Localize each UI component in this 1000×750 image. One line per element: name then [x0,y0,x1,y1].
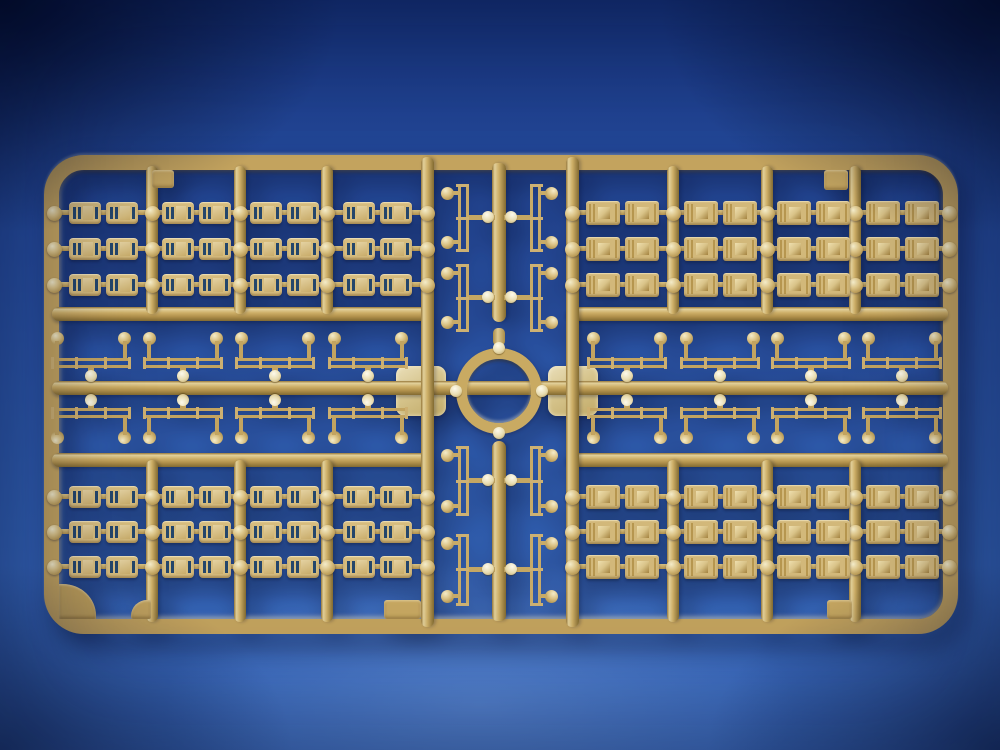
davit-tick [862,407,865,419]
davit-tick [143,407,146,419]
davit-tick [915,357,918,369]
knob-gate [320,560,335,575]
ladder-part [504,182,558,254]
knob-gate [666,490,681,505]
davit-gate-lug [896,370,908,382]
ring-gate-nub [493,342,505,354]
knob-gate [320,278,335,293]
davit-tick [75,407,78,419]
hatch-part-panel [684,201,718,225]
knob-gate [942,206,957,221]
hatch-part-panel [816,520,850,544]
ladder-rung [456,568,469,571]
davit-tick [939,407,942,419]
davit-rail [680,415,760,418]
ladder-rung [530,217,543,220]
davit-tick [862,357,865,369]
hatch-part-slatted [250,486,282,508]
davit-tick [680,407,683,419]
ladder-rung [530,534,543,537]
davit-rail [328,358,408,361]
runner-vertical [234,460,246,622]
hatch-part-panel [777,485,811,509]
knob-gate [565,525,580,540]
hatch-part-slatted [380,238,412,260]
hatch-part-panel [905,520,939,544]
ladder-rung [456,534,469,537]
hatch-part-slatted [199,556,231,578]
hatch-part-panel [866,237,900,261]
davit-post [307,418,311,435]
hatch-part-panel [625,555,659,579]
hatch-part-panel [625,520,659,544]
ladder-gate-lug [482,291,494,303]
knob-gate [420,242,435,257]
davit-tick [587,357,590,369]
davit-rail [235,358,315,361]
davit-tick [795,357,798,369]
davit-tick [220,407,223,419]
corner-tab [827,600,852,619]
knob-gate [942,242,957,257]
ladder-rung [456,329,469,332]
hatch-part-panel [777,520,811,544]
davit-post [239,341,243,358]
hatch-part-slatted [287,238,319,260]
knob-gate [47,560,62,575]
davit-gate-lug [896,394,908,406]
knob-gate [233,278,248,293]
ladder-rung [456,249,469,252]
knob-gate [47,278,62,293]
davit-tick [51,357,54,369]
davit-gate-lug [621,370,633,382]
ladder-stub [452,320,458,324]
davit-tick [196,407,199,419]
davit-tick [328,357,331,369]
sprue-assembly [0,0,1000,750]
davit-post [934,341,938,358]
davit-tick [288,407,291,419]
davit-post [775,341,779,358]
knob-gate [233,490,248,505]
hatch-part-slatted [343,274,375,296]
hatch-part-slatted [250,202,282,224]
davit-gate-lug [85,370,97,382]
runner-horizontal [566,307,948,321]
hatch-part-slatted [380,202,412,224]
hatch-part-slatted [162,274,194,296]
hatch-part-panel [625,273,659,297]
hatch-part-slatted [199,238,231,260]
ladder-stub [452,504,458,508]
davit-part [860,331,944,381]
davit-rail [143,358,223,361]
davit-tick [352,357,355,369]
runner-vertical [321,460,333,622]
davit-gate-lug [621,394,633,406]
runner-vertical [146,460,158,622]
davit-tick [381,407,384,419]
davit-post [400,341,404,358]
davit-tick [757,407,760,419]
davit-tick [328,407,331,419]
davit-post [400,418,404,435]
davit-tick [235,357,238,369]
hatch-part-panel [816,273,850,297]
knob-gate [565,490,580,505]
hatch-part-panel [905,237,939,261]
knob-gate [47,242,62,257]
davit-tick [733,407,736,419]
hatch-part-panel [625,201,659,225]
davit-tick [757,357,760,369]
ladder-stub [452,453,458,457]
davit-tick [848,407,851,419]
knob-gate [320,490,335,505]
hatch-part-slatted [343,521,375,543]
davit-tick [848,357,851,369]
knob-gate [760,490,775,505]
hatch-part-slatted [106,274,138,296]
hatch-part-panel [866,520,900,544]
davit-part [49,395,133,445]
davit-gate-lug [269,394,281,406]
ladder-stub [541,271,547,275]
davit-tick [288,357,291,369]
hatch-part-slatted [106,238,138,260]
ladder-rung [456,513,469,516]
davit-tick [664,357,667,369]
hatch-part-slatted [343,556,375,578]
ladder-part [504,444,558,518]
davit-tick [51,407,54,419]
knob-gate [233,206,248,221]
davit-part [49,331,133,381]
davit-post [215,341,219,358]
hatch-part-panel [625,237,659,261]
davit-tick [640,407,643,419]
knob-gate [666,525,681,540]
hatch-part-slatted [380,521,412,543]
ladder-stub [452,594,458,598]
davit-tick [128,407,131,419]
ladder-rung [530,513,543,516]
knob-gate [565,206,580,221]
ladder-stub [541,594,547,598]
davit-tick [104,357,107,369]
ladder-rung [456,480,469,483]
hatch-part-slatted [343,486,375,508]
knob-gate [942,490,957,505]
hatch-part-slatted [250,274,282,296]
hatch-part-slatted [162,521,194,543]
knob-gate [320,525,335,540]
knob-gate [233,525,248,540]
davit-tick [771,407,774,419]
davit-gate-lug [805,370,817,382]
davit-post [55,341,59,358]
ladder-stub [541,191,547,195]
davit-post [307,341,311,358]
davit-gate-lug [714,370,726,382]
hatch-part-panel [586,520,620,544]
hatch-part-slatted [250,238,282,260]
hatch-part-slatted [287,202,319,224]
ladder-part [441,262,495,334]
photo-of-sprue [0,0,1000,750]
davit-part [860,395,944,445]
hatch-part-panel [684,520,718,544]
davit-tick [312,407,315,419]
ladder-rung [530,446,543,449]
knob-gate [320,242,335,257]
hatch-part-panel [684,555,718,579]
davit-post [591,418,595,435]
davit-gate-lug [714,394,726,406]
davit-gate-lug [362,394,374,406]
hatch-part-slatted [106,202,138,224]
knob-gate [145,206,160,221]
davit-tick [886,407,889,419]
davit-post [332,418,336,435]
davit-tick [640,357,643,369]
ladder-stub [541,541,547,545]
davit-tick [167,357,170,369]
davit-part [585,331,669,381]
knob-gate [420,490,435,505]
davit-tick [886,357,889,369]
davit-post [752,341,756,358]
ladder-gate-lug [482,563,494,575]
davit-rail [680,358,760,361]
hatch-part-panel [866,201,900,225]
ladder-gate-lug [505,291,517,303]
davit-gate-lug [85,394,97,406]
runner-vertical [421,157,434,627]
ring-gate-nub [493,427,505,439]
hatch-part-panel [816,485,850,509]
davit-post [215,418,219,435]
runner-horizontal [566,453,948,467]
ladder-rung [530,249,543,252]
knob-gate [760,278,775,293]
hatch-part-panel [816,237,850,261]
davit-tick [405,407,408,419]
ladder-stub [541,320,547,324]
davit-tick [128,357,131,369]
davit-post [752,418,756,435]
ladder-stub [452,240,458,244]
ladder-rung [530,329,543,332]
davit-rail [328,415,408,418]
davit-post [775,418,779,435]
davit-tick [824,357,827,369]
hatch-part-panel [866,485,900,509]
ladder-rung [530,568,543,571]
knob-gate [47,525,62,540]
davit-gate-lug [269,370,281,382]
hatch-part-slatted [162,202,194,224]
davit-part [585,395,669,445]
hatch-part-slatted [69,274,101,296]
runner-vertical [761,460,773,622]
ladder-part [441,532,495,608]
hatch-part-panel [777,273,811,297]
davit-rail [51,358,131,361]
knob-gate [760,242,775,257]
knob-gate [942,278,957,293]
knob-gate [233,560,248,575]
hatch-part-slatted [106,521,138,543]
knob-gate [942,560,957,575]
davit-tick [795,407,798,419]
davit-tick [259,407,262,419]
davit-part [141,331,225,381]
ladder-rung [530,480,543,483]
knob-gate [760,525,775,540]
ladder-gate-lug [482,474,494,486]
davit-rail [771,358,851,361]
davit-part [769,331,853,381]
davit-post [147,418,151,435]
davit-post [55,418,59,435]
davit-rail [587,415,667,418]
davit-post [843,418,847,435]
runner-vertical [849,460,861,622]
hatch-part-panel [777,201,811,225]
ring-gate-nub [450,385,462,397]
hatch-part-panel [684,237,718,261]
knob-gate [760,206,775,221]
hatch-part-panel [723,237,757,261]
knob-gate [666,206,681,221]
hatch-part-slatted [162,486,194,508]
knob-gate [320,206,335,221]
hatch-part-panel [723,520,757,544]
hatch-part-slatted [287,556,319,578]
davit-part [326,395,410,445]
ladder-rung [456,264,469,267]
davit-tick [824,407,827,419]
davit-post [684,341,688,358]
davit-tick [733,357,736,369]
knob-gate [145,490,160,505]
hatch-part-slatted [69,238,101,260]
ladder-rung [456,603,469,606]
hatch-part-panel [586,237,620,261]
hatch-part-panel [905,555,939,579]
hatch-part-panel [723,485,757,509]
runner-vertical [667,460,679,622]
hatch-part-slatted [69,556,101,578]
knob-gate [565,242,580,257]
hatch-part-slatted [287,521,319,543]
hatch-part-panel [684,485,718,509]
hatch-part-panel [586,201,620,225]
ladder-gate-lug [482,211,494,223]
hatch-part-slatted [162,238,194,260]
hatch-part-slatted [199,274,231,296]
davit-part [326,331,410,381]
davit-tick [220,357,223,369]
hatch-part-slatted [199,202,231,224]
davit-rail [51,415,131,418]
davit-tick [104,407,107,419]
davit-tick [235,407,238,419]
ring-part [456,348,542,434]
davit-rail [862,415,942,418]
hatch-part-panel [866,555,900,579]
hatch-part-panel [723,555,757,579]
ladder-part [504,262,558,334]
knob-gate [666,560,681,575]
knob-gate [145,560,160,575]
knob-gate [666,278,681,293]
ladder-rung [530,264,543,267]
davit-tick [664,407,667,419]
ladder-rung [530,184,543,187]
davit-rail [587,358,667,361]
davit-gate-lug [177,370,189,382]
davit-part [678,395,762,445]
davit-part [233,331,317,381]
ladder-stub [541,453,547,457]
hatch-part-panel [866,273,900,297]
knob-gate [420,525,435,540]
davit-part [233,395,317,445]
knob-gate [420,206,435,221]
ladder-gate-lug [505,474,517,486]
davit-post [591,341,595,358]
davit-tick [167,407,170,419]
davit-post [843,341,847,358]
hatch-part-panel [816,201,850,225]
knob-gate [565,560,580,575]
davit-rail [143,415,223,418]
knob-gate [47,206,62,221]
davit-tick [75,357,78,369]
hatch-part-slatted [343,238,375,260]
ladder-part [441,444,495,518]
davit-part [678,331,762,381]
hatch-part-slatted [69,521,101,543]
hatch-part-slatted [69,486,101,508]
runner-vertical [566,157,579,627]
ladder-stub [452,541,458,545]
hatch-part-panel [905,273,939,297]
hatch-part-slatted [287,274,319,296]
hatch-part-panel [905,485,939,509]
ladder-part [441,182,495,254]
ladder-stub [452,271,458,275]
knob-gate [942,525,957,540]
davit-post [147,341,151,358]
hatch-part-slatted [380,486,412,508]
hatch-part-slatted [162,556,194,578]
davit-post [934,418,938,435]
hatch-part-panel [723,273,757,297]
hatch-part-slatted [69,202,101,224]
knob-gate [666,242,681,257]
knob-gate [420,278,435,293]
davit-gate-lug [177,394,189,406]
hatch-part-panel [905,201,939,225]
davit-post [123,341,127,358]
hatch-part-slatted [380,556,412,578]
knob-gate [565,278,580,293]
hatch-part-slatted [287,486,319,508]
